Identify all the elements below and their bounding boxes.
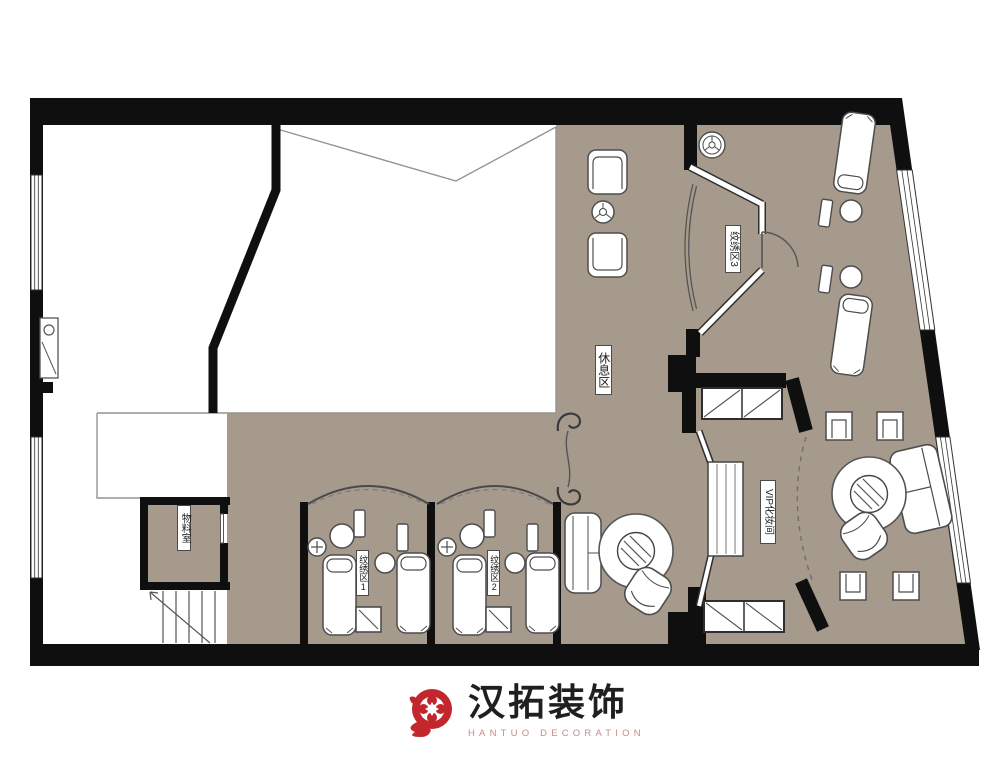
room-label-tattoo-area-1: 纹绣区1 bbox=[356, 550, 369, 596]
vip-closet-top bbox=[702, 388, 782, 419]
brand-logo: 汉拓装饰 HANTUO DECORATION bbox=[403, 684, 645, 742]
material-room-door bbox=[221, 514, 224, 543]
room-label-rest-area: 休息区 bbox=[595, 345, 612, 395]
cloud-emblem-icon bbox=[403, 684, 459, 742]
floor-plan-page: 休息区 纹绣区1 纹绣区2 纹绣区3 VIP化妆间 物料室 汉拓装饰 HANTU… bbox=[0, 0, 1000, 758]
room-label-tattoo-area-2: 纹绣区2 bbox=[487, 550, 500, 596]
staircase bbox=[150, 591, 215, 643]
brand-title: 汉拓装饰 bbox=[468, 684, 645, 725]
room-label-tattoo-area-3: 纹绣区3 bbox=[725, 225, 741, 273]
vip-closet-bottom bbox=[704, 601, 784, 632]
room-label-material-room: 物料室 bbox=[177, 505, 191, 551]
floor-plan-drawing bbox=[0, 0, 1000, 758]
wall-fixture bbox=[40, 318, 58, 378]
left-window-top bbox=[31, 175, 42, 290]
room-label-vip-makeup-room: VIP化妆间 bbox=[760, 480, 776, 544]
brand-tagline: HANTUO DECORATION bbox=[468, 728, 645, 739]
left-window-bottom bbox=[31, 437, 42, 578]
